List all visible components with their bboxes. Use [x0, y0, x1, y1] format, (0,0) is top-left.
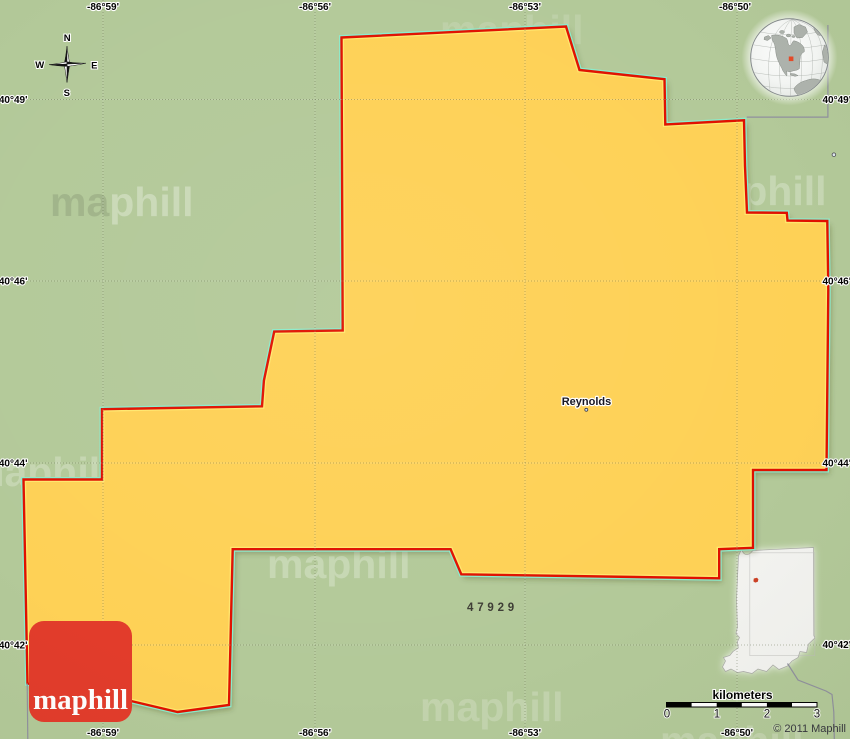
svg-text:-86°53': -86°53' — [509, 728, 541, 739]
svg-text:3: 3 — [814, 709, 820, 721]
svg-text:© 2011 Maphill: © 2011 Maphill — [773, 723, 846, 735]
svg-text:kilometers: kilometers — [712, 688, 772, 702]
svg-text:W: W — [35, 60, 44, 71]
svg-text:-86°50': -86°50' — [719, 2, 751, 13]
svg-text:N: N — [64, 33, 71, 44]
svg-text:40°49': 40°49' — [823, 95, 850, 106]
svg-text:-86°50': -86°50' — [721, 728, 753, 739]
svg-text:-86°53': -86°53' — [509, 2, 541, 13]
svg-text:40°49': 40°49' — [0, 95, 28, 106]
svg-text:40°44': 40°44' — [823, 459, 850, 470]
svg-text:-86°56': -86°56' — [299, 2, 331, 13]
svg-text:S: S — [64, 88, 70, 99]
svg-text:2: 2 — [764, 709, 770, 721]
svg-text:0: 0 — [664, 709, 670, 721]
svg-text:40°42': 40°42' — [823, 640, 850, 651]
svg-text:40°46': 40°46' — [0, 277, 28, 288]
svg-text:-86°59': -86°59' — [87, 2, 119, 13]
svg-text:-86°59': -86°59' — [87, 728, 119, 739]
svg-text:maphill: maphill — [50, 179, 194, 225]
svg-text:40°44': 40°44' — [0, 459, 28, 470]
svg-text:40°46': 40°46' — [823, 277, 850, 288]
svg-text:Reynolds: Reynolds — [562, 396, 612, 408]
svg-text:1: 1 — [714, 709, 720, 721]
svg-text:maphill: maphill — [420, 684, 564, 730]
svg-text:E: E — [91, 61, 97, 72]
svg-text:-86°56': -86°56' — [299, 728, 331, 739]
svg-text:40°42': 40°42' — [0, 641, 28, 652]
svg-text:47929: 47929 — [467, 602, 518, 614]
